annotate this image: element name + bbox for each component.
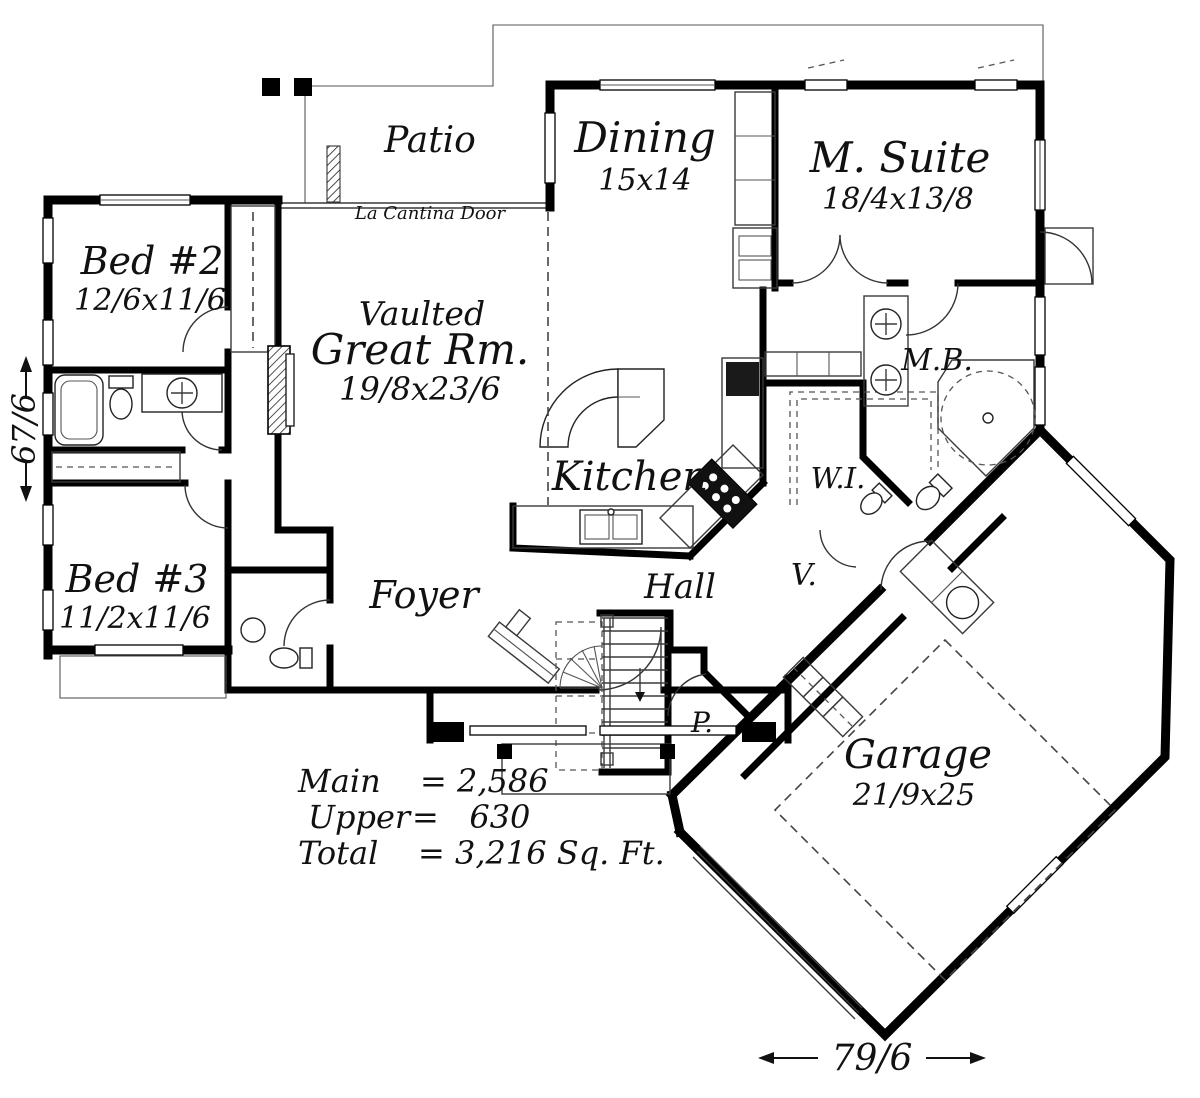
window <box>100 195 190 205</box>
toilet <box>109 376 133 419</box>
toilet <box>270 648 312 668</box>
area-total-value: = 3,216 Sq. Ft. <box>418 834 665 872</box>
dim-width-text: 79/6 <box>832 1038 913 1079</box>
window <box>43 393 53 435</box>
window <box>545 113 555 183</box>
room-dims-greatrm: 19/8x23/6 <box>339 370 501 408</box>
room-label-greatrm: Great Rm. <box>311 325 530 374</box>
toilet <box>912 474 952 514</box>
vanity-sink <box>142 374 222 412</box>
area-upper-label: Upper <box>308 798 412 836</box>
msuite-double-door-arc <box>840 235 888 283</box>
linen-closet <box>52 452 180 482</box>
msuite-landing <box>1045 228 1093 284</box>
garage-interior <box>693 640 1115 1019</box>
room-label-p: P. <box>690 706 713 739</box>
room-label-msuite: M. Suite <box>809 133 991 182</box>
msuite-double-door-arc <box>792 235 840 283</box>
window <box>43 320 53 365</box>
wi-cabinet-row <box>765 352 861 376</box>
dimension-width: 79/6 <box>758 1038 986 1079</box>
dim-height-text: 67/6 <box>5 393 43 465</box>
bed3-door-arc <box>185 485 228 528</box>
laundry-sink <box>900 540 993 633</box>
room-dims-bed2: 12/6x11/6 <box>74 283 226 318</box>
window <box>95 645 183 655</box>
patio-post <box>294 78 312 96</box>
room-label-foyer: Foyer <box>368 573 481 617</box>
room-dims-garage: 21/9x25 <box>852 778 975 813</box>
room-dims-bed3: 11/2x11/6 <box>59 601 211 636</box>
stair-direction-arrow <box>635 668 645 702</box>
kitchen-tall-cabinets <box>733 92 777 288</box>
patio-door-jamb <box>327 146 340 202</box>
window <box>1007 857 1064 914</box>
room-labels: Patio La Cantina Door Dining 15x14 M. Su… <box>59 113 992 813</box>
la-cantina-door-label: La Cantina Door <box>354 203 507 224</box>
msuite-exterior-door-arc <box>1040 232 1092 284</box>
area-main-value: = 2,586 <box>420 762 549 800</box>
dimension-height: 67/6 <box>5 356 43 502</box>
window <box>1035 297 1045 355</box>
front-door-arc <box>598 627 661 690</box>
room-dims-msuite: 18/4x13/8 <box>822 182 974 217</box>
window <box>975 80 1017 90</box>
cooktop <box>726 362 759 396</box>
window <box>43 218 53 263</box>
window <box>805 80 847 90</box>
window <box>43 590 53 630</box>
pedestal-sink <box>241 618 265 642</box>
area-upper-value: = 630 <box>412 798 530 836</box>
room-label-bed2: Bed #2 <box>80 239 224 283</box>
mb-door-arc <box>906 283 958 335</box>
floor-plan-drawing: Patio La Cantina Door Dining 15x14 M. Su… <box>0 0 1200 1098</box>
nook-sofa <box>540 369 664 447</box>
room-label-dining: Dining <box>573 113 716 162</box>
window <box>1035 367 1045 425</box>
window <box>1066 456 1135 525</box>
patio-post <box>262 78 280 96</box>
bath-door-arc <box>182 410 222 450</box>
exterior-walls <box>48 85 1170 1035</box>
room-dims-dining: 15x14 <box>598 163 691 198</box>
room-label-kitchen: Kitchen <box>551 454 708 500</box>
room-label-hall: Hall <box>643 567 716 607</box>
window <box>43 505 53 545</box>
stair-winder-fan <box>560 646 602 688</box>
area-main-label: Main <box>297 762 381 800</box>
foyer-art-niche <box>488 605 573 683</box>
room-label-garage: Garage <box>844 732 992 778</box>
window <box>600 80 715 90</box>
side-walk <box>60 656 226 698</box>
window <box>1035 140 1045 210</box>
bed2-closet <box>231 206 275 352</box>
room-label-mb: M.B. <box>900 343 973 378</box>
vestibule-door-arc <box>820 530 856 567</box>
room-label-v: V. <box>791 558 817 593</box>
room-label-wi: W.I. <box>811 461 866 495</box>
area-summary: Main = 2,586 Upper = 630 Total = 3,216 S… <box>297 762 665 872</box>
room-label-bed3: Bed #3 <box>65 557 209 601</box>
room-label-patio: Patio <box>383 120 476 161</box>
area-total-label: Total <box>298 834 378 872</box>
bathtub <box>55 375 103 445</box>
fireplace <box>268 346 294 434</box>
floor-plan-sheet: Patio La Cantina Door Dining 15x14 M. Su… <box>0 0 1200 1098</box>
powder-door-arc <box>284 600 330 646</box>
